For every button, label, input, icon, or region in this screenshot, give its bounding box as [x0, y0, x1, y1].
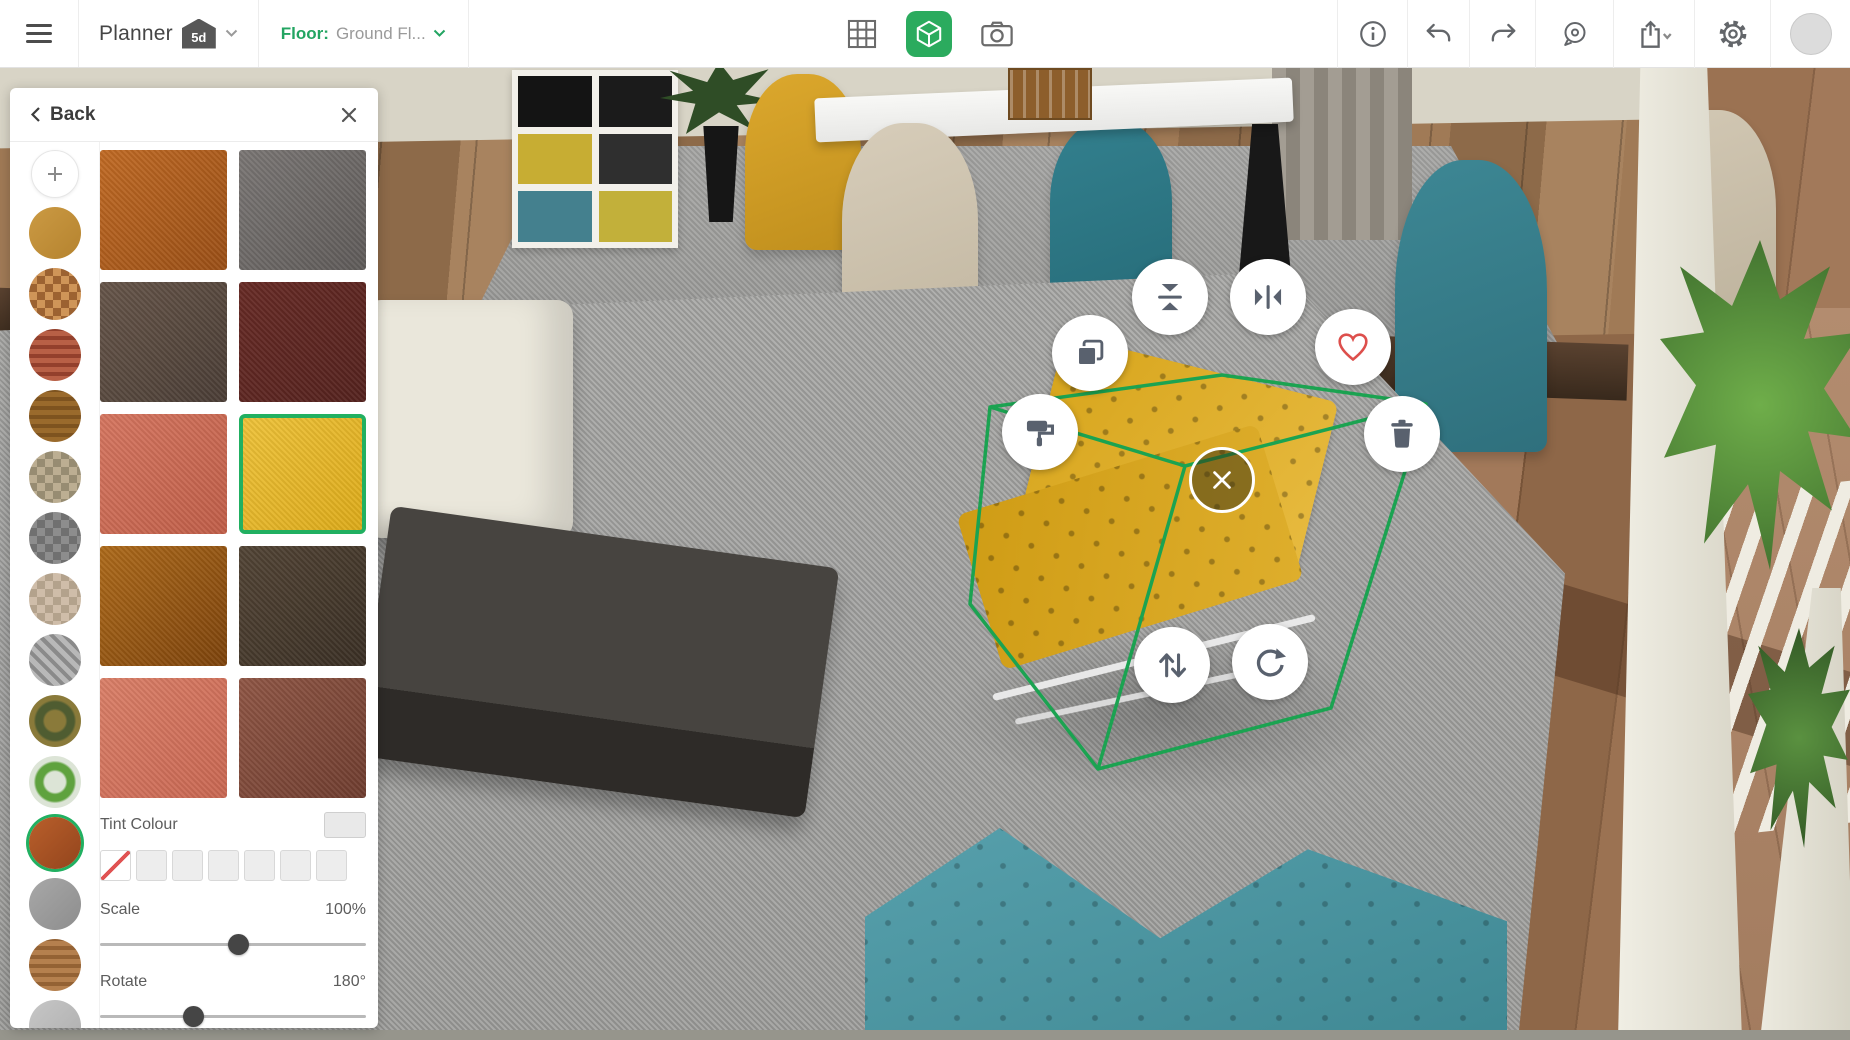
texture-panel: Back Tint Colour Scale 100%	[10, 88, 378, 1028]
rotate-value: 180°	[333, 973, 366, 991]
rotate-slider-track[interactable]	[100, 1015, 366, 1018]
tint-palette-swatch-3[interactable]	[208, 850, 239, 881]
favorite-button[interactable]	[1315, 309, 1391, 385]
texture-swatch-gray-stone[interactable]	[29, 878, 81, 930]
floor-selector[interactable]: Floor: Ground Fl...	[258, 0, 468, 67]
texture-tile-burgundy-leather[interactable]	[239, 282, 366, 402]
tape-measure-icon	[1559, 19, 1591, 49]
texture-tile-grid	[100, 150, 366, 798]
tint-palette-row	[100, 850, 366, 881]
tint-palette-swatch-6[interactable]	[316, 850, 347, 881]
panel-close-button[interactable]	[340, 106, 358, 124]
move-vertical-button[interactable]	[1134, 627, 1210, 703]
paint-button[interactable]	[1002, 394, 1078, 470]
copy-button[interactable]	[1052, 315, 1128, 391]
redo-icon	[1487, 21, 1519, 47]
app-logo-dropdown[interactable]: Planner 5d	[78, 0, 258, 67]
snapshot-button[interactable]	[979, 19, 1015, 49]
account-button[interactable]	[1770, 0, 1850, 68]
texture-panel-header: Back	[10, 88, 378, 142]
texture-panel-body: Tint Colour Scale 100% Rotate 180°	[10, 142, 378, 1028]
tint-palette-swatch-4[interactable]	[244, 850, 275, 881]
bottom-edge-strip	[0, 1030, 1850, 1040]
texture-panel-main: Tint Colour Scale 100% Rotate 180°	[100, 142, 366, 1028]
copy-icon	[1071, 334, 1109, 372]
texture-swatch-wood-planks[interactable]	[29, 390, 81, 442]
texture-tile-salmon-leather[interactable]	[100, 678, 227, 798]
chevron-down-icon	[433, 29, 446, 38]
texture-tile-dark-brown-leather[interactable]	[239, 546, 366, 666]
3d-view-button[interactable]	[906, 11, 952, 57]
texture-swatch-terracotta-leather[interactable]	[29, 817, 81, 869]
undo-icon	[1423, 21, 1455, 47]
scale-row: Scale 100%	[100, 901, 366, 919]
delete-button[interactable]	[1364, 396, 1440, 472]
undo-button[interactable]	[1407, 0, 1469, 68]
texture-swatch-copper-wood[interactable]	[29, 939, 81, 991]
flip-horizontal-button[interactable]	[1230, 259, 1306, 335]
chevron-down-icon	[225, 29, 238, 38]
texture-swatch-green-moss[interactable]	[29, 756, 81, 808]
info-icon	[1358, 19, 1388, 49]
tint-palette-swatch-2[interactable]	[172, 850, 203, 881]
view-mode-tools	[845, 0, 1015, 68]
back-label: Back	[50, 104, 95, 126]
close-icon	[1205, 463, 1239, 497]
rotate-row: Rotate 180°	[100, 973, 366, 991]
close-icon	[340, 106, 358, 124]
texture-swatch-rail	[10, 142, 100, 1028]
share-export-icon	[1634, 19, 1674, 49]
white-sofa[interactable]	[365, 300, 573, 538]
texture-swatch-gray-carpet[interactable]	[29, 512, 81, 564]
main-menu-button[interactable]	[0, 0, 78, 67]
tint-colour-swatch[interactable]	[324, 812, 366, 838]
texture-tile-orange-leather[interactable]	[100, 150, 227, 270]
trash-icon	[1383, 415, 1421, 453]
chevron-left-icon	[30, 106, 41, 123]
flip-horizontal-icon	[1249, 278, 1287, 316]
paint-roller-icon	[1021, 413, 1059, 451]
tint-palette-swatch-5[interactable]	[280, 850, 311, 881]
scale-value: 100%	[325, 901, 366, 919]
texture-tile-russet-leather[interactable]	[239, 678, 366, 798]
app-name: Planner	[99, 22, 173, 46]
redo-button[interactable]	[1469, 0, 1535, 68]
scale-label: Scale	[100, 901, 140, 919]
settings-button[interactable]	[1694, 0, 1770, 68]
texture-swatch-pebbles[interactable]	[29, 451, 81, 503]
rotate-label: Rotate	[100, 973, 147, 991]
plus-icon	[45, 164, 65, 184]
grid-2d-icon	[845, 17, 879, 51]
texture-swatch-parquet-mosaic[interactable]	[29, 268, 81, 320]
texture-tile-brown-leather[interactable]	[100, 282, 227, 402]
texture-swatch-gray-marble[interactable]	[29, 634, 81, 686]
texture-tile-amber-leather[interactable]	[100, 546, 227, 666]
tint-colour-label: Tint Colour	[100, 816, 178, 834]
scale-slider-thumb[interactable]	[228, 934, 249, 955]
info-button[interactable]	[1337, 0, 1407, 68]
back-button[interactable]: Back	[30, 104, 95, 126]
texture-swatch-light-granite[interactable]	[29, 1000, 81, 1028]
measure-button[interactable]	[1535, 0, 1613, 68]
rotate-slider-thumb[interactable]	[183, 1006, 204, 1027]
floor-value: Ground Fl...	[336, 24, 426, 44]
heart-icon	[1334, 328, 1372, 366]
tint-palette-swatch-1[interactable]	[136, 850, 167, 881]
texture-tile-yellow-leather[interactable]	[239, 414, 366, 534]
curtain[interactable]	[1272, 68, 1412, 240]
avatar	[1790, 13, 1832, 55]
flip-vertical-icon	[1151, 278, 1189, 316]
rotate-icon	[1251, 643, 1289, 681]
tint-colour-row: Tint Colour	[100, 812, 366, 838]
texture-tile-coral-leather[interactable]	[100, 414, 227, 534]
app-logo-badge: 5d	[182, 19, 216, 49]
add-texture-button[interactable]	[31, 150, 79, 198]
scale-slider[interactable]	[100, 934, 366, 955]
table-crate[interactable]	[1008, 68, 1092, 120]
gear-icon	[1717, 19, 1749, 49]
tint-none-swatch[interactable]	[100, 850, 131, 881]
texture-swatch-mosaic-medallion[interactable]	[29, 695, 81, 747]
arrows-up-down-icon	[1153, 646, 1191, 684]
floor-label: Floor:	[281, 24, 329, 44]
camera-icon	[979, 19, 1015, 49]
cube-3d-icon	[913, 18, 945, 50]
top-toolbar: Planner 5d Floor: Ground Fl...	[0, 0, 1850, 68]
texture-tile-gray-leather[interactable]	[239, 150, 366, 270]
rotate-button[interactable]	[1232, 624, 1308, 700]
bookshelf[interactable]	[512, 70, 678, 248]
texture-swatch-red-brick[interactable]	[29, 329, 81, 381]
2d-view-button[interactable]	[845, 17, 879, 51]
utility-tools	[1337, 0, 1850, 68]
hamburger-icon	[26, 24, 52, 43]
texture-swatch-cork[interactable]	[29, 207, 81, 259]
texture-swatch-beige-plaid[interactable]	[29, 573, 81, 625]
share-button[interactable]	[1613, 0, 1694, 68]
rotate-slider[interactable]	[100, 1006, 366, 1027]
flip-vertical-button[interactable]	[1132, 259, 1208, 335]
close-selection-button[interactable]	[1189, 447, 1255, 513]
